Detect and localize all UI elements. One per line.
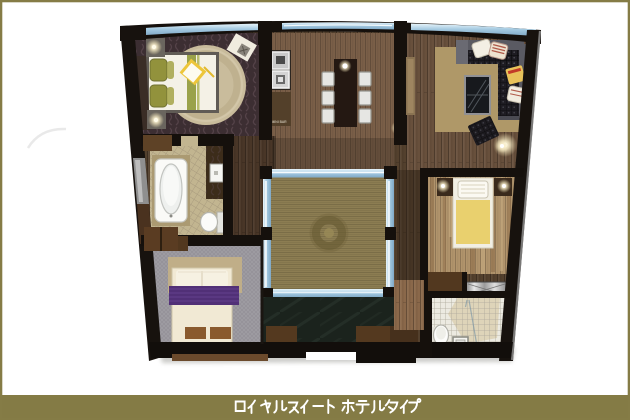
svg-text:MINI BAR: MINI BAR xyxy=(272,120,288,124)
